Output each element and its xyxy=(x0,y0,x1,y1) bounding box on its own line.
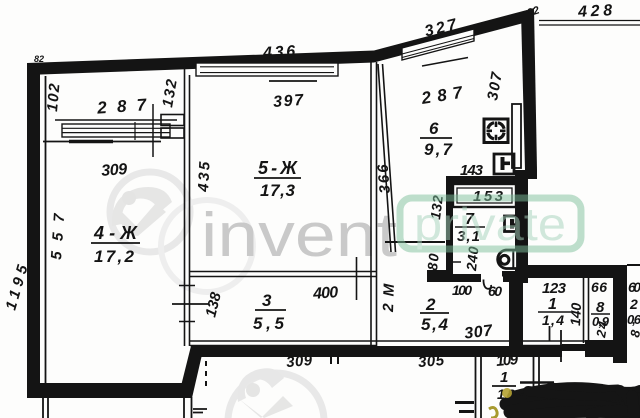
svg-text:102: 102 xyxy=(44,82,63,112)
svg-text:140: 140 xyxy=(567,302,584,326)
svg-text:private: private xyxy=(414,198,566,250)
svg-text:1,4: 1,4 xyxy=(542,312,564,328)
svg-text:9,7: 9,7 xyxy=(424,140,454,159)
svg-text:309: 309 xyxy=(101,161,128,180)
svg-text:287: 287 xyxy=(96,95,149,118)
svg-text:428: 428 xyxy=(577,2,613,21)
svg-text:82: 82 xyxy=(34,54,44,64)
svg-text:366: 366 xyxy=(374,163,394,194)
svg-text:1: 1 xyxy=(500,369,508,386)
svg-text:1: 1 xyxy=(548,296,557,313)
svg-text:0,6: 0,6 xyxy=(627,312,640,327)
svg-text:17,2: 17,2 xyxy=(94,247,135,266)
svg-text:2: 2 xyxy=(425,295,436,314)
svg-text:307: 307 xyxy=(463,322,494,342)
svg-text:17,3: 17,3 xyxy=(260,181,296,200)
svg-text:557: 557 xyxy=(48,213,68,261)
svg-text:435: 435 xyxy=(195,161,214,194)
svg-text:123: 123 xyxy=(542,280,567,297)
svg-text:100: 100 xyxy=(452,282,472,298)
svg-text:305: 305 xyxy=(417,352,445,371)
svg-text:397: 397 xyxy=(273,92,305,111)
svg-text:309: 309 xyxy=(285,352,313,371)
svg-text:143: 143 xyxy=(460,162,484,179)
svg-text:109: 109 xyxy=(495,351,519,370)
svg-text:60: 60 xyxy=(628,279,640,295)
svg-text:3: 3 xyxy=(262,291,272,310)
svg-text:24: 24 xyxy=(593,319,611,339)
svg-text:436: 436 xyxy=(262,43,296,62)
svg-text:66: 66 xyxy=(591,279,607,295)
svg-text:60: 60 xyxy=(488,283,502,299)
svg-text:5,4: 5,4 xyxy=(421,315,449,334)
svg-text:2: 2 xyxy=(629,296,638,312)
svg-text:6: 6 xyxy=(429,119,439,138)
svg-text:400: 400 xyxy=(312,284,339,303)
svg-text:5,5: 5,5 xyxy=(253,314,285,333)
svg-text:invent: invent xyxy=(201,201,397,270)
